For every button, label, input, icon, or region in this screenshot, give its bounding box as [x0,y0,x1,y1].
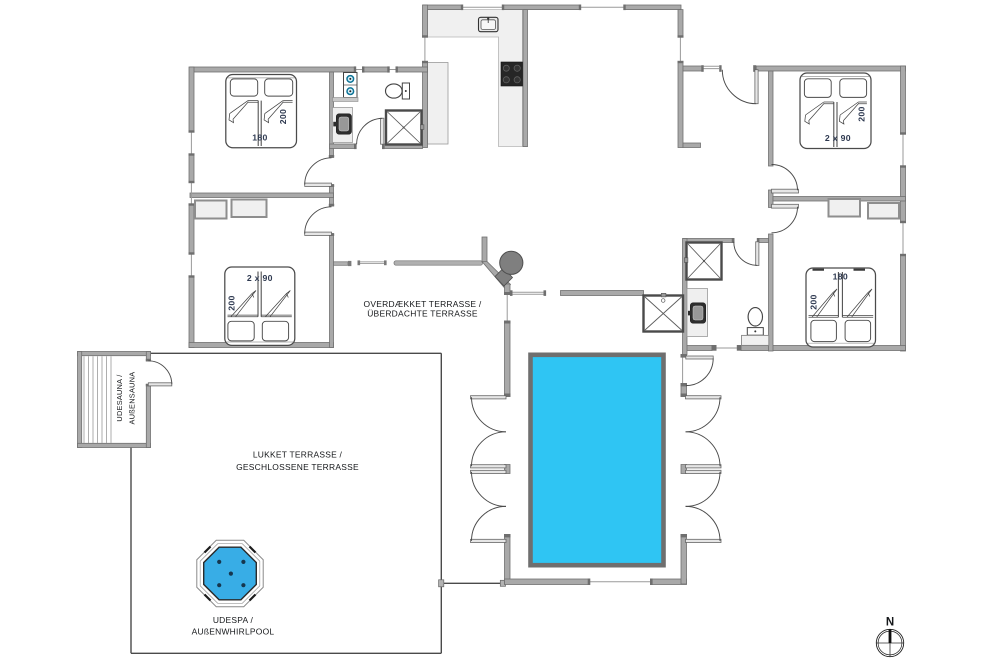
svg-text:UDESPA /: UDESPA / [213,615,254,625]
svg-text:200: 200 [278,109,288,124]
svg-text:OVERDÆKKET TERRASSE /: OVERDÆKKET TERRASSE / [364,299,482,309]
svg-text:2 x 90: 2 x 90 [247,273,273,283]
svg-text:UDESAUNA /: UDESAUNA / [115,374,124,422]
svg-text:200: 200 [227,295,237,310]
svg-text:N: N [886,617,894,629]
svg-text:ÜBERDACHTE TERRASSE: ÜBERDACHTE TERRASSE [367,309,478,319]
svg-text:LUKKET TERRASSE /: LUKKET TERRASSE / [253,450,343,460]
svg-text:180: 180 [833,272,848,282]
svg-text:200: 200 [809,294,819,309]
svg-text:2 x 90: 2 x 90 [825,133,851,143]
svg-text:200: 200 [857,106,867,121]
svg-text:GESCHLOSSENE TERRASSE: GESCHLOSSENE TERRASSE [236,462,359,472]
svg-text:180: 180 [252,132,267,142]
svg-text:AUßENSAUNA: AUßENSAUNA [128,372,137,425]
svg-text:AUßENWHIRLPOOL: AUßENWHIRLPOOL [192,627,275,637]
